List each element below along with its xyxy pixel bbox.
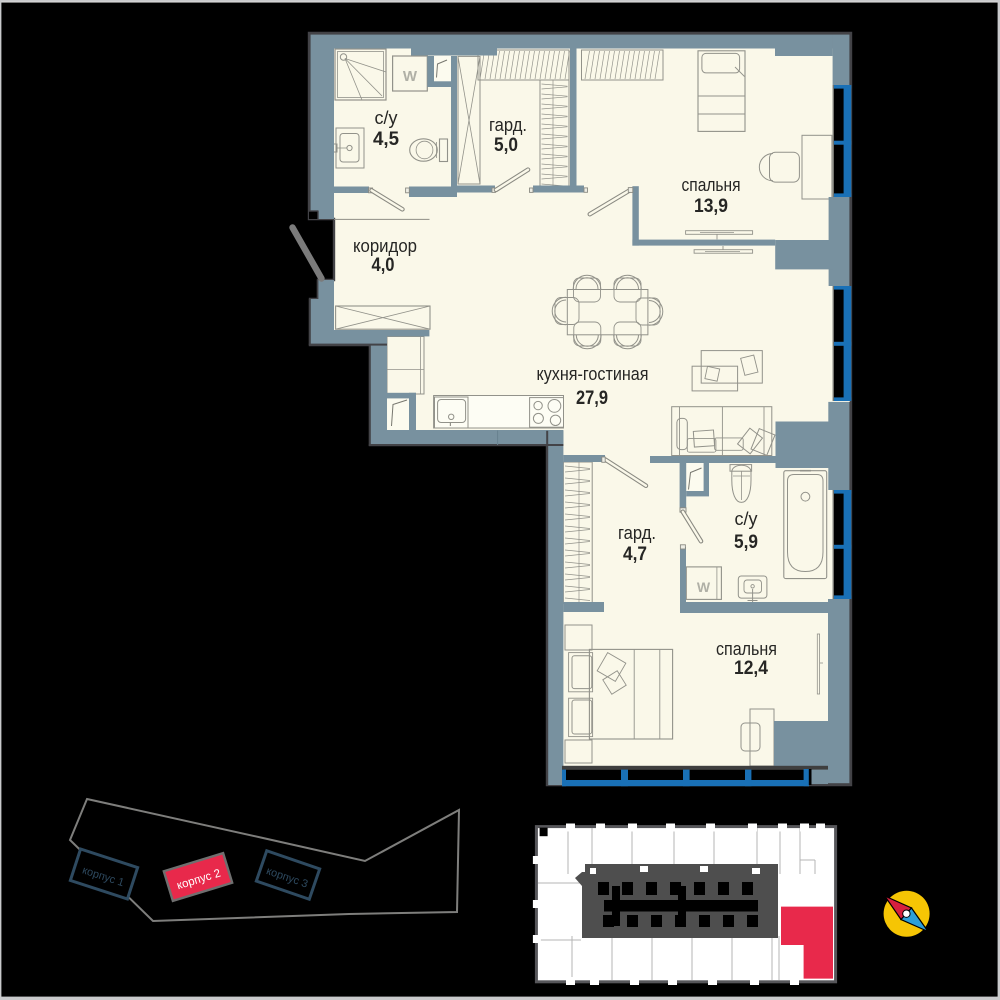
svg-text:27,9: 27,9 <box>576 388 608 409</box>
svg-text:спальня: спальня <box>716 639 777 659</box>
svg-text:W: W <box>403 68 418 85</box>
svg-text:5,9: 5,9 <box>734 532 758 553</box>
svg-text:гард.: гард. <box>618 523 656 543</box>
svg-text:с/у: с/у <box>375 108 398 128</box>
svg-text:гард.: гард. <box>489 115 527 135</box>
svg-text:13,9: 13,9 <box>694 196 728 217</box>
svg-text:с/у: с/у <box>735 509 758 529</box>
svg-text:12,4: 12,4 <box>734 658 768 679</box>
svg-text:W: W <box>697 579 711 595</box>
svg-text:4,7: 4,7 <box>623 544 647 565</box>
svg-text:коридор: коридор <box>353 236 417 256</box>
svg-text:спальня: спальня <box>682 175 741 195</box>
svg-text:4,5: 4,5 <box>373 129 399 150</box>
svg-text:кухня-гостиная: кухня-гостиная <box>537 364 649 384</box>
svg-text:5,0: 5,0 <box>494 135 518 156</box>
svg-text:4,0: 4,0 <box>372 255 395 276</box>
